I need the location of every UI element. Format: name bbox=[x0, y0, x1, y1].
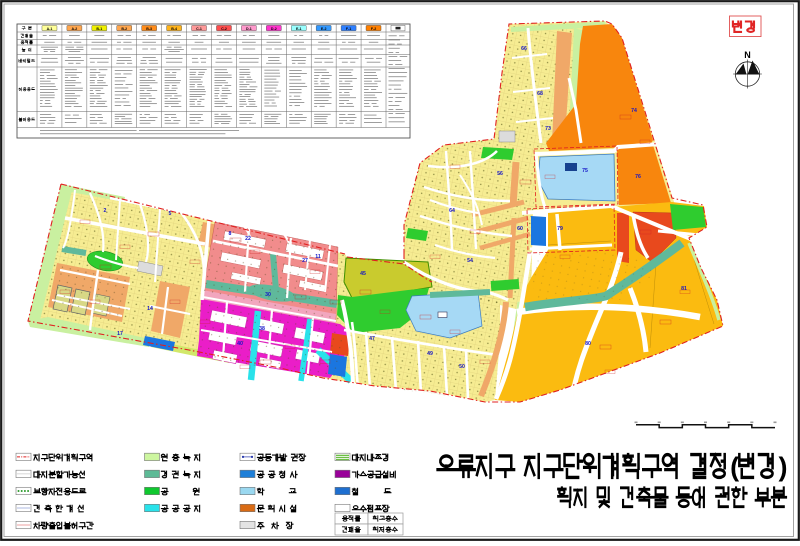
svg-text:45: 45 bbox=[360, 271, 366, 277]
svg-text:2: 2 bbox=[104, 208, 107, 214]
svg-text:50: 50 bbox=[459, 364, 465, 370]
svg-text:40: 40 bbox=[237, 341, 243, 347]
svg-text:79: 79 bbox=[557, 226, 563, 232]
svg-text:F-2: F-2 bbox=[371, 27, 376, 31]
svg-text:22: 22 bbox=[245, 236, 251, 242]
svg-text:73: 73 bbox=[545, 126, 551, 132]
svg-text:38: 38 bbox=[259, 326, 265, 332]
svg-text:B-2: B-2 bbox=[121, 27, 127, 31]
svg-text:5: 5 bbox=[169, 211, 172, 217]
svg-text:11: 11 bbox=[315, 254, 321, 260]
svg-text:A-1: A-1 bbox=[47, 27, 53, 31]
svg-text:49: 49 bbox=[427, 351, 433, 357]
svg-text:D-2: D-2 bbox=[271, 27, 277, 31]
svg-text:54: 54 bbox=[467, 258, 473, 264]
svg-text:B-1: B-1 bbox=[96, 27, 102, 31]
svg-text:47: 47 bbox=[369, 336, 375, 342]
svg-text:(: ( bbox=[730, 452, 739, 482]
svg-text:C-2: C-2 bbox=[221, 27, 227, 31]
svg-text:F-1: F-1 bbox=[346, 27, 351, 31]
svg-text:76: 76 bbox=[635, 174, 641, 180]
svg-text:80: 80 bbox=[585, 341, 591, 347]
svg-text:27: 27 bbox=[302, 258, 308, 264]
svg-text:E-2: E-2 bbox=[321, 27, 327, 31]
svg-text:60: 60 bbox=[517, 226, 523, 232]
svg-text:B-3: B-3 bbox=[146, 27, 152, 31]
svg-text:D-1: D-1 bbox=[246, 27, 252, 31]
svg-text:C-1: C-1 bbox=[196, 27, 202, 31]
svg-text:56: 56 bbox=[497, 171, 503, 177]
svg-text:B-4: B-4 bbox=[171, 27, 177, 31]
svg-text:66: 66 bbox=[521, 46, 527, 52]
svg-text:81: 81 bbox=[681, 286, 687, 292]
svg-text:14: 14 bbox=[147, 306, 153, 312]
svg-text:74: 74 bbox=[631, 108, 637, 114]
svg-text:): ) bbox=[779, 452, 788, 482]
svg-text:N: N bbox=[744, 50, 751, 60]
svg-text:30: 30 bbox=[265, 292, 271, 298]
svg-text:17: 17 bbox=[117, 331, 123, 337]
svg-text:68: 68 bbox=[537, 91, 543, 97]
svg-text:64: 64 bbox=[449, 208, 455, 214]
svg-text:75: 75 bbox=[582, 168, 588, 174]
svg-text:A-2: A-2 bbox=[71, 27, 77, 31]
svg-text:E-1: E-1 bbox=[296, 27, 302, 31]
svg-text:8: 8 bbox=[229, 231, 232, 237]
